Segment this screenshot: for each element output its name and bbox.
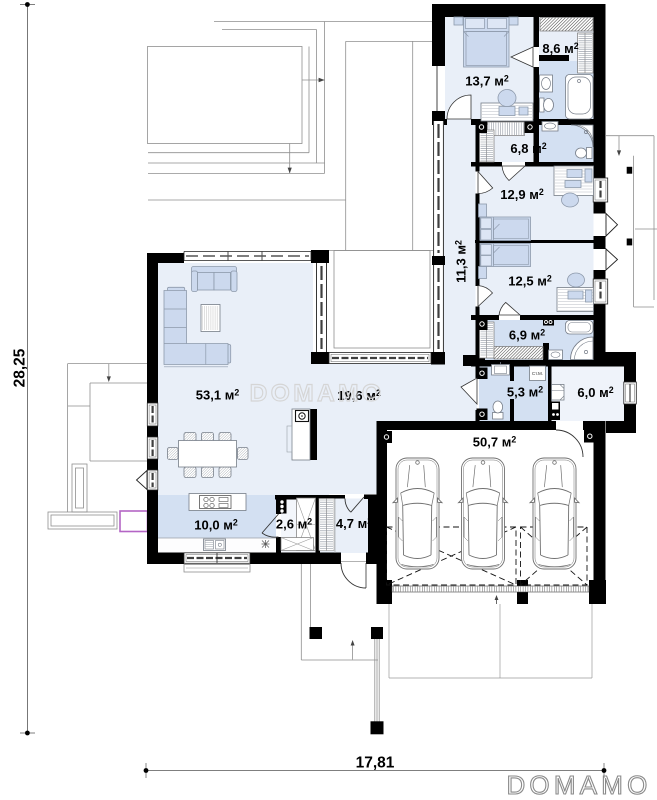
- svg-text:28,25: 28,25: [12, 348, 29, 387]
- svg-text:10,0 м2: 10,0 м2: [194, 518, 238, 533]
- svg-text:13,7 м2: 13,7 м2: [465, 74, 509, 89]
- svg-text:50,7 м2: 50,7 м2: [473, 435, 517, 450]
- svg-text:11,3 м2: 11,3 м2: [454, 240, 469, 283]
- svg-text:53,1 м2: 53,1 м2: [196, 388, 240, 403]
- svg-text:6,8 м2: 6,8 м2: [510, 141, 546, 156]
- svg-text:6,0 м2: 6,0 м2: [577, 385, 613, 400]
- svg-text:12,9 м2: 12,9 м2: [500, 187, 544, 202]
- svg-text:DOMAMO: DOMAMO: [250, 380, 385, 407]
- svg-text:4,7 м2: 4,7 м2: [336, 516, 372, 531]
- svg-text:8,6 м2: 8,6 м2: [542, 41, 578, 56]
- svg-text:17,81: 17,81: [356, 755, 395, 772]
- svg-text:5,3 м2: 5,3 м2: [507, 385, 543, 400]
- svg-text:Ст.М.: Ст.М.: [532, 371, 543, 376]
- svg-text:6,9 м2: 6,9 м2: [509, 328, 545, 343]
- svg-text:DOMAMO: DOMAMO: [506, 770, 651, 800]
- svg-text:12,5 м2: 12,5 м2: [508, 274, 552, 289]
- svg-text:2,6 м2: 2,6 м2: [276, 517, 312, 532]
